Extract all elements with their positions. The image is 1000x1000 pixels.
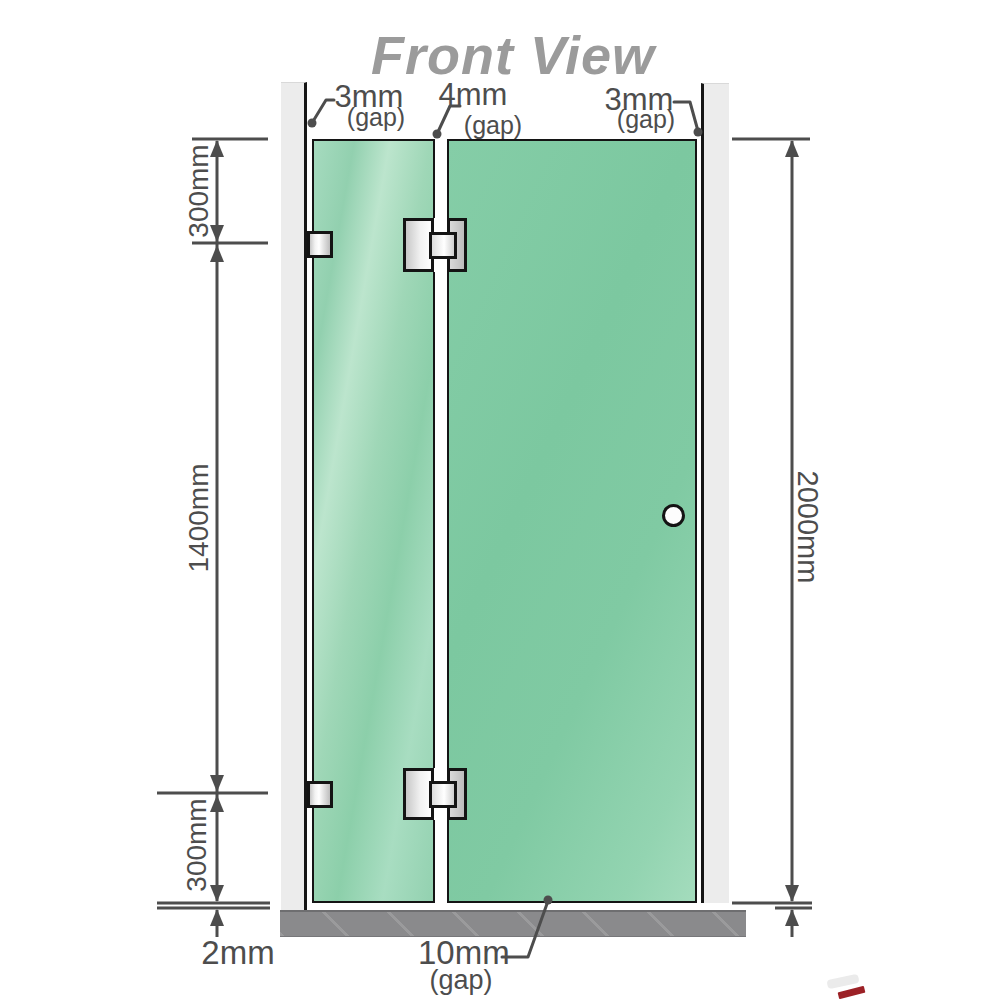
- dimension-lines: [0, 0, 1000, 1000]
- gap-leader-lines: [308, 100, 703, 957]
- gap-label-middle-value: 4mm: [436, 79, 510, 110]
- gap-label-right-note: (gap): [611, 107, 681, 132]
- front-view-diagram: Front View: [0, 0, 1000, 1000]
- dim-floor-2mm: 2mm: [196, 936, 280, 969]
- leader-dots: [308, 119, 703, 905]
- gap-label-middle-note: (gap): [456, 113, 530, 138]
- gap-label-left-note: (gap): [340, 105, 412, 130]
- bottom-gap-note: (gap): [418, 967, 504, 994]
